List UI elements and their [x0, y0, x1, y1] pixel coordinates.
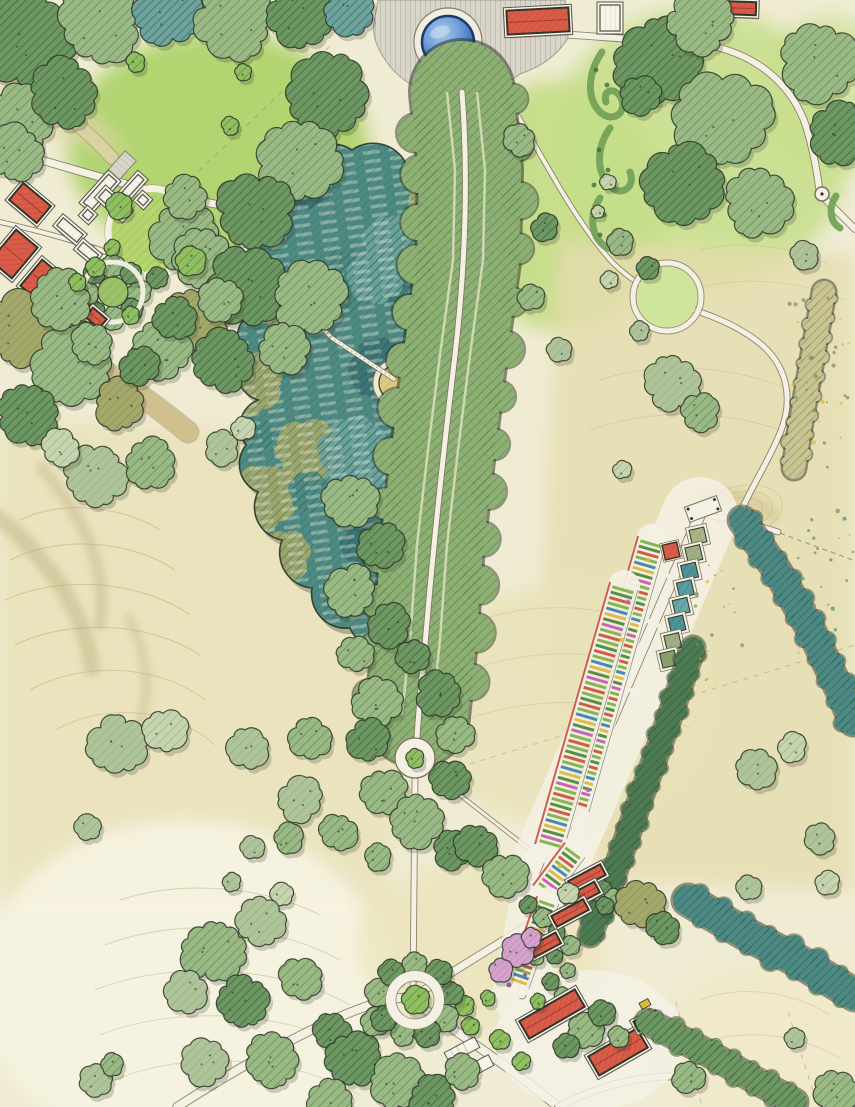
- masterplan-canvas: [0, 0, 855, 1107]
- rond-point-with-specimen-tree: [395, 738, 435, 778]
- red-roof-building: [503, 4, 573, 39]
- tree-clump: [813, 1071, 855, 1107]
- garden-red-plot: [660, 540, 683, 563]
- white-building: [597, 2, 623, 35]
- watercolor-masterplan-svg: [0, 0, 855, 1107]
